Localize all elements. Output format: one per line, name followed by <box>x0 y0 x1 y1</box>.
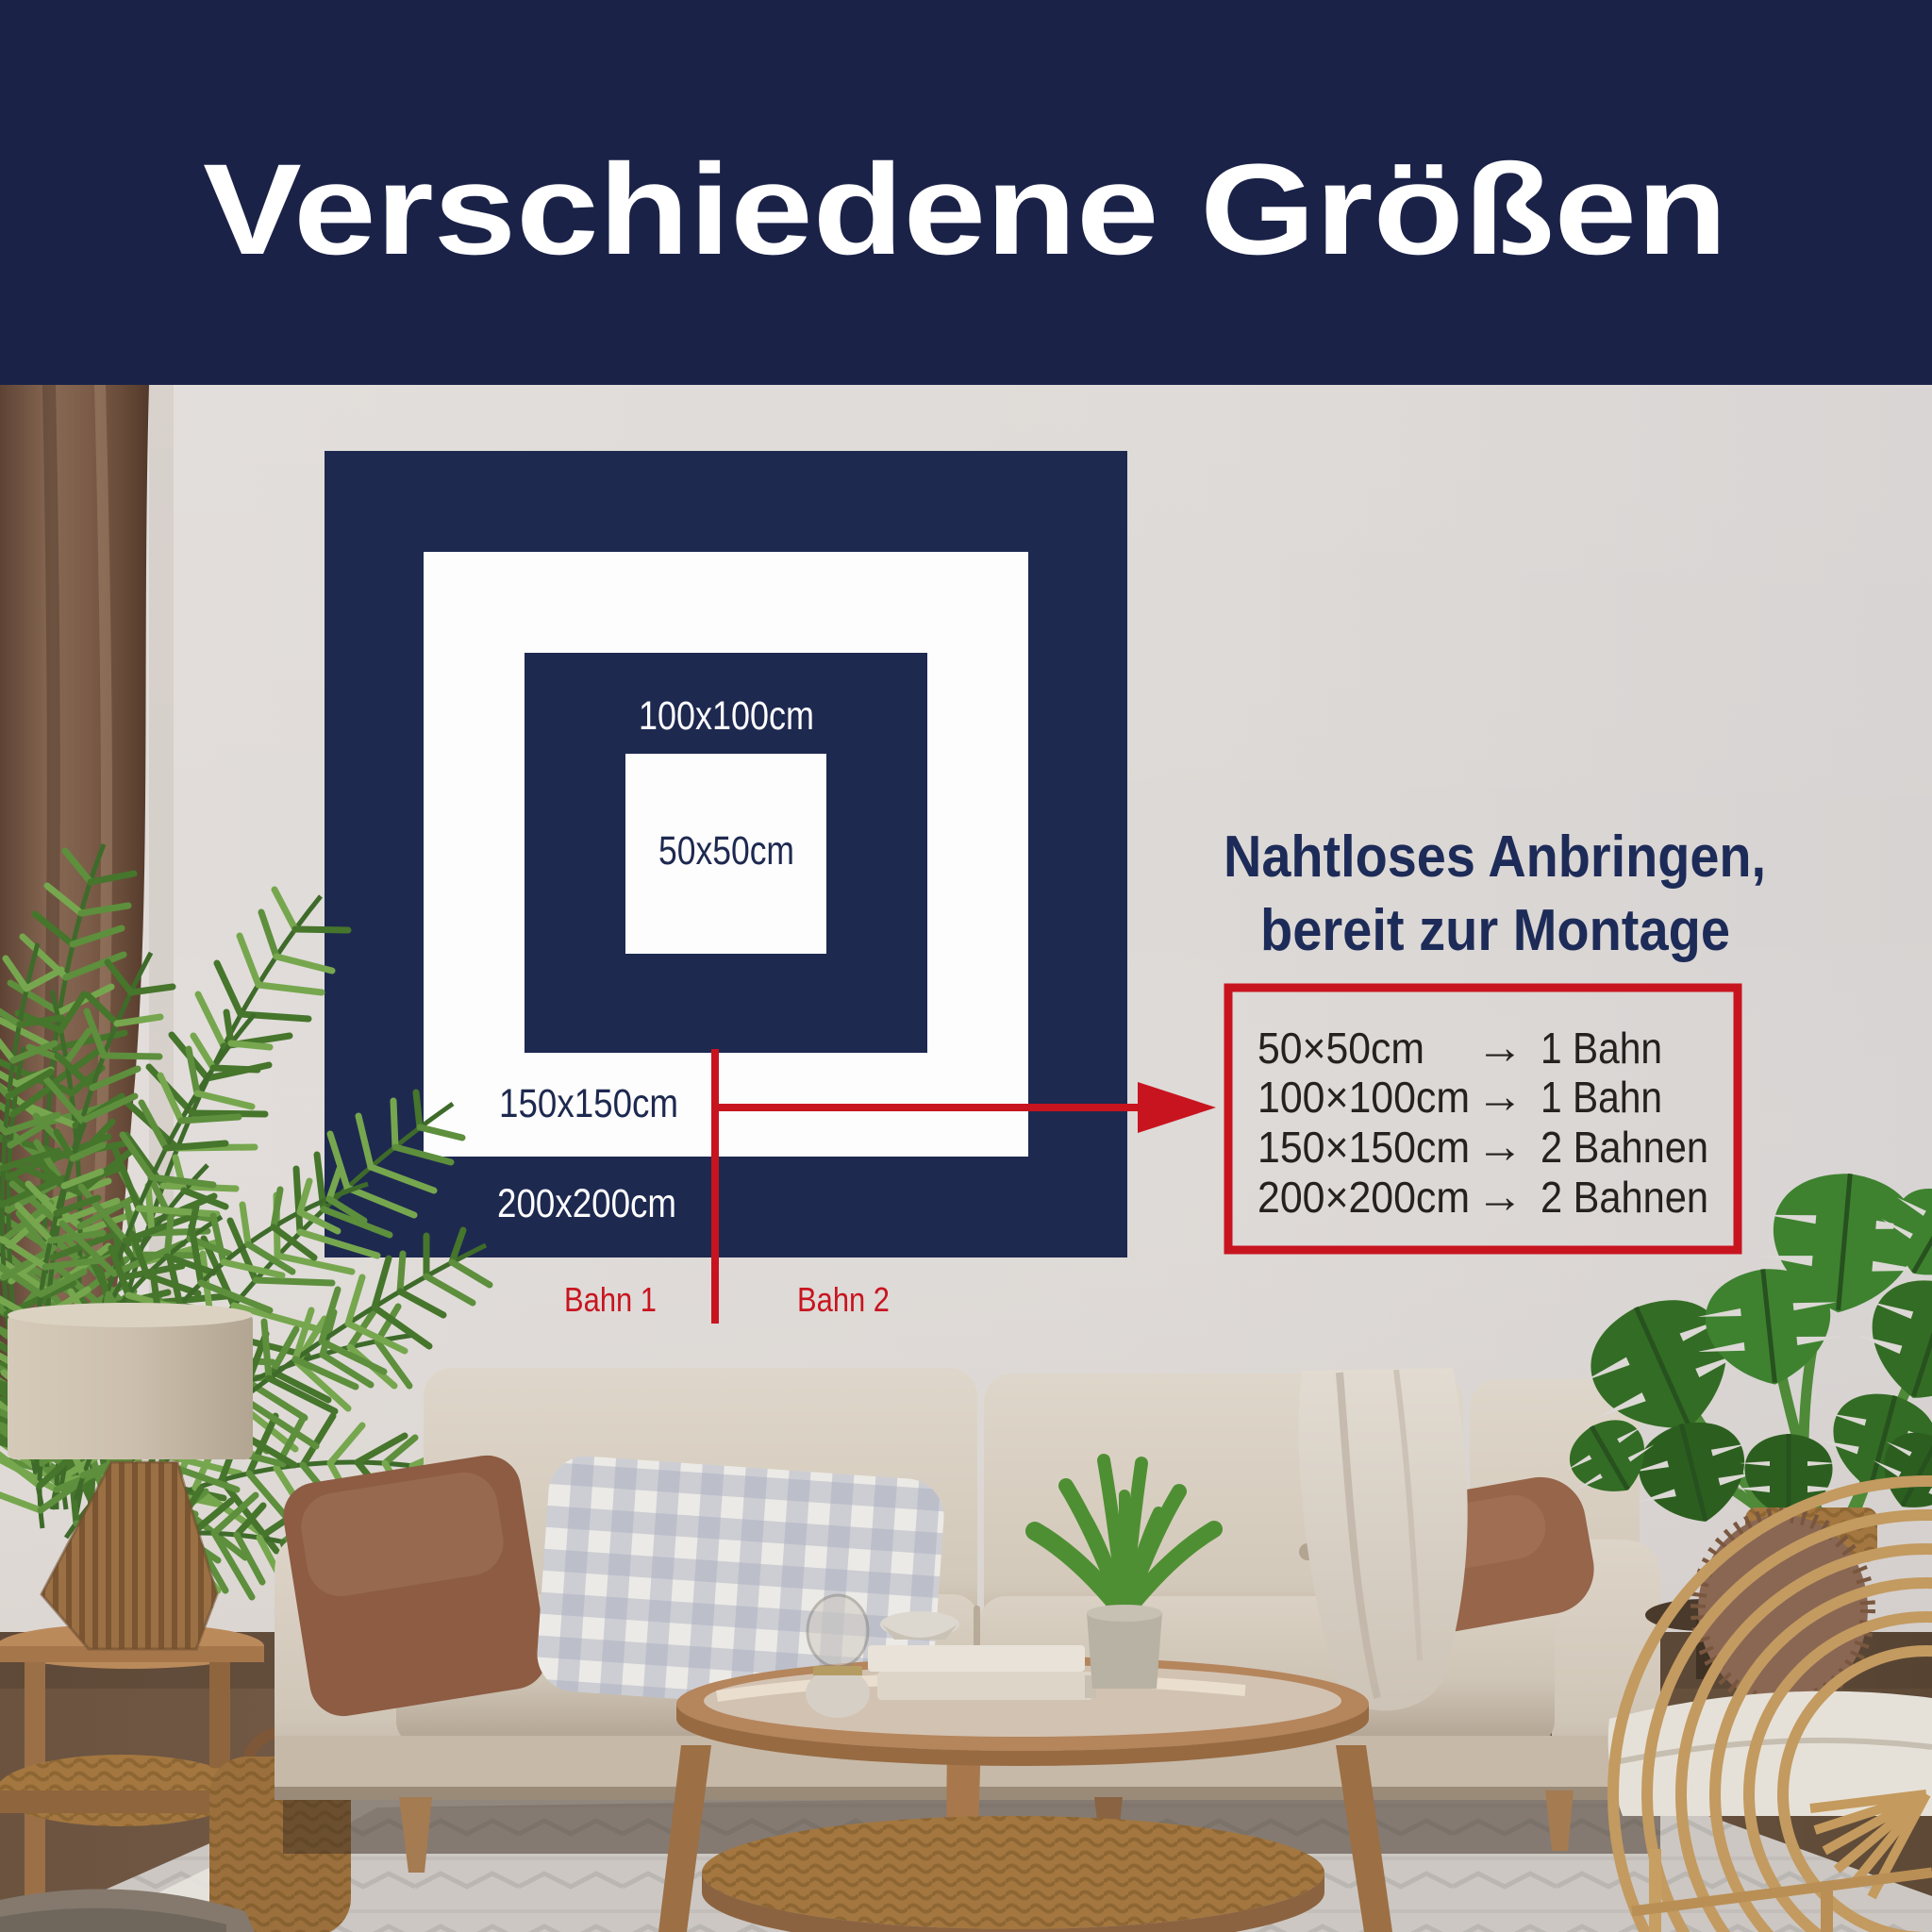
svg-text:2 Bahnen: 2 Bahnen <box>1541 1123 1708 1172</box>
svg-text:150x150cm: 150x150cm <box>499 1081 678 1126</box>
svg-text:200×200cm: 200×200cm <box>1257 1173 1470 1222</box>
svg-text:50×50cm: 50×50cm <box>1257 1024 1424 1073</box>
svg-text:Verschiedene Größen: Verschiedene Größen <box>203 138 1727 282</box>
svg-text:100×100cm: 100×100cm <box>1257 1073 1470 1122</box>
svg-text:150×150cm: 150×150cm <box>1257 1123 1470 1172</box>
svg-text:bereit zur Montage: bereit zur Montage <box>1260 898 1730 963</box>
svg-text:1 Bahn: 1 Bahn <box>1541 1073 1662 1122</box>
svg-text:50x50cm: 50x50cm <box>658 828 794 874</box>
svg-text:100x100cm: 100x100cm <box>639 693 814 739</box>
svg-text:Bahn 2: Bahn 2 <box>797 1280 890 1319</box>
svg-text:→: → <box>1476 1021 1524 1074</box>
svg-text:2 Bahnen: 2 Bahnen <box>1541 1173 1708 1222</box>
svg-text:200x200cm: 200x200cm <box>497 1181 676 1226</box>
svg-text:Nahtloses Anbringen,: Nahtloses Anbringen, <box>1224 824 1766 890</box>
svg-text:1 Bahn: 1 Bahn <box>1541 1024 1662 1073</box>
svg-text:Bahn 1: Bahn 1 <box>564 1280 657 1319</box>
svg-text:→: → <box>1476 1170 1524 1223</box>
svg-text:→: → <box>1476 1120 1524 1173</box>
svg-text:→: → <box>1476 1070 1524 1123</box>
